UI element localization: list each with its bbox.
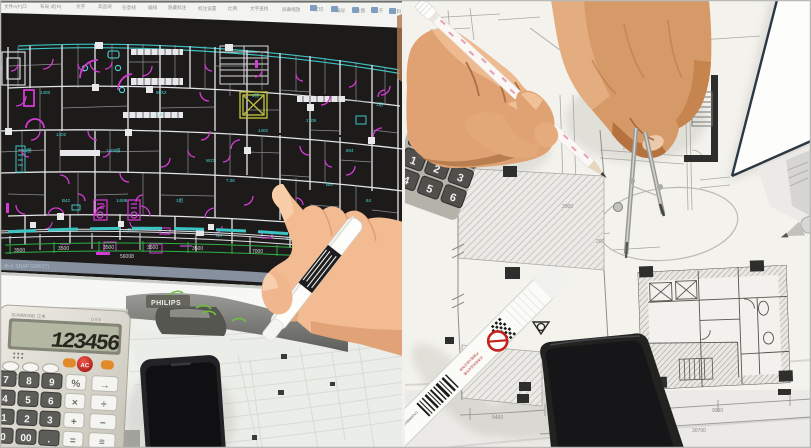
svg-text:5: 5 [25, 395, 32, 406]
svg-text:=: = [70, 436, 77, 447]
svg-text:文字: 文字 [76, 3, 86, 10]
svg-text:任意线: 任意线 [122, 4, 136, 11]
svg-text:3500: 3500 [103, 245, 114, 251]
svg-text:≡: ≡ [99, 437, 106, 448]
svg-text:1708: 1708 [306, 118, 317, 123]
svg-text:3: 3 [47, 415, 54, 426]
svg-text:8: 8 [26, 376, 33, 387]
svg-text:9000: 9000 [712, 408, 723, 414]
svg-text:200: 200 [596, 239, 605, 245]
svg-text:3500: 3500 [192, 246, 203, 252]
svg-text:W21: W21 [206, 158, 216, 163]
svg-text:编排: 编排 [148, 4, 158, 11]
svg-text:AC: AC [80, 363, 90, 369]
svg-text:5400: 5400 [492, 415, 503, 421]
svg-text:1组: 1组 [176, 197, 184, 203]
svg-text:1.A: 1.A [156, 112, 163, 117]
svg-text:隐藏标注: 隐藏标注 [168, 4, 187, 11]
svg-text:D 8 8: D 8 8 [91, 316, 102, 322]
svg-text:3500: 3500 [14, 248, 25, 254]
svg-text:84: 84 [366, 198, 372, 203]
svg-text:1408级: 1408级 [106, 147, 121, 154]
svg-text:9: 9 [49, 377, 56, 388]
svg-text:命令:SNAP GRID(T): 命令:SNAP GRID(T) [4, 263, 50, 270]
svg-text:高品块: 高品块 [98, 3, 112, 10]
svg-text:+: + [71, 417, 78, 428]
svg-text:00: 00 [20, 433, 32, 445]
svg-text:1402: 1402 [56, 132, 67, 137]
svg-text:4: 4 [2, 394, 9, 405]
svg-text:2: 2 [24, 414, 31, 425]
svg-text:%: % [71, 379, 81, 390]
svg-text:布局 式(R): 布局 式(R) [40, 3, 62, 10]
svg-text:1408: 1408 [40, 90, 51, 95]
svg-text:123456: 123456 [49, 329, 122, 357]
svg-text:NA: NA [216, 233, 222, 238]
svg-text:比例: 比例 [228, 5, 238, 12]
svg-text:7: 7 [3, 375, 10, 386]
svg-text:7.08: 7.08 [226, 178, 235, 183]
svg-text:3500: 3500 [147, 245, 158, 251]
svg-text:文字查找: 文字查找 [250, 5, 269, 12]
svg-text:14M8: 14M8 [116, 198, 128, 203]
svg-text:PHILIPS: PHILIPS [151, 300, 181, 307]
svg-text:BM: BM [326, 182, 333, 187]
svg-text:B42: B42 [62, 198, 71, 203]
svg-text:→: → [99, 380, 110, 392]
svg-text:屏幕缩放: 屏幕缩放 [282, 6, 301, 13]
svg-text:3500: 3500 [58, 246, 69, 252]
svg-text:1402: 1402 [258, 128, 269, 133]
svg-text:98X2: 98X2 [156, 90, 167, 95]
svg-text:2000: 2000 [562, 204, 573, 210]
svg-text:×: × [72, 398, 79, 409]
svg-text:1: 1 [1, 413, 8, 424]
svg-text:30700: 30700 [692, 428, 706, 434]
svg-text:7000: 7000 [252, 249, 263, 255]
svg-text:标注设置: 标注设置 [198, 5, 217, 12]
svg-text:804: 804 [346, 148, 354, 153]
svg-text:1组: 1组 [376, 101, 384, 107]
svg-text:文件A(F)凸: 文件A(F)凸 [4, 3, 27, 10]
svg-text:56008: 56008 [120, 254, 134, 260]
svg-text:6: 6 [48, 396, 55, 407]
svg-text:−: − [100, 418, 107, 429]
